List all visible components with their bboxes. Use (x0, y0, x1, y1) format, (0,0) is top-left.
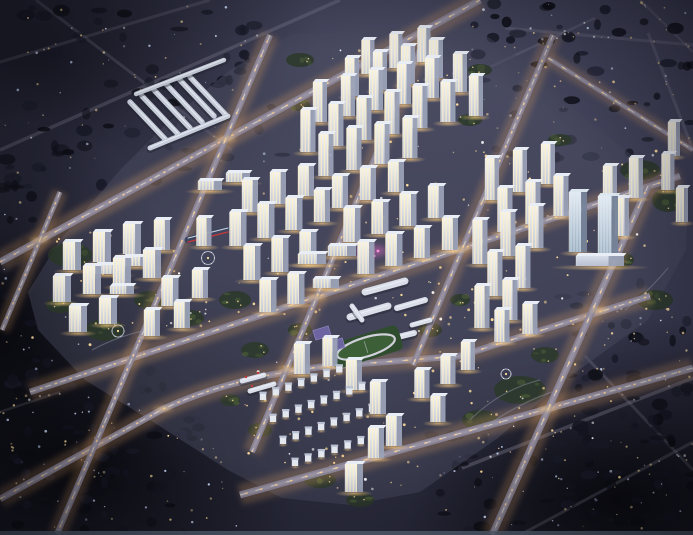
aerial-render-image (0, 0, 693, 535)
atmosphere-layer (0, 0, 693, 535)
render-canvas (0, 0, 693, 535)
